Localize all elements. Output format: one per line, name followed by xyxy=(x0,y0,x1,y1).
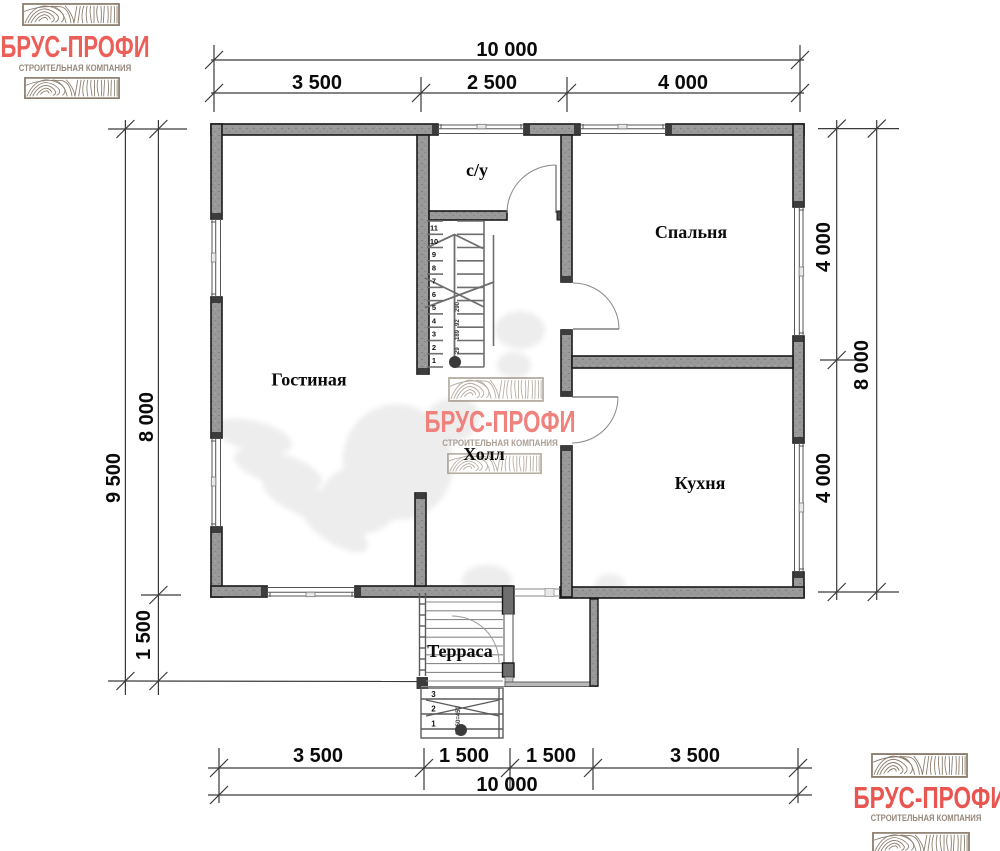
svg-text:9: 9 xyxy=(432,250,436,259)
svg-text:189: 189 xyxy=(455,329,461,340)
svg-text:1: 1 xyxy=(432,356,436,365)
svg-text:СТРОИТЕЛЬНАЯ КОМПАНИЯ: СТРОИТЕЛЬНАЯ КОМПАНИЯ xyxy=(19,62,132,73)
svg-text:БРУС-ПРОФИ: БРУС-ПРОФИ xyxy=(0,29,149,64)
svg-text:3 500: 3 500 xyxy=(670,745,720,767)
svg-text:Терраса: Терраса xyxy=(427,641,493,661)
svg-text:11: 11 xyxy=(430,224,438,233)
svg-text:92: 92 xyxy=(455,319,461,326)
svg-text:3: 3 xyxy=(432,330,436,339)
svg-text:Кухня: Кухня xyxy=(675,473,726,493)
svg-text:БРУС-ПРОФИ: БРУС-ПРОФИ xyxy=(424,404,575,438)
svg-text:3: 3 xyxy=(431,690,436,699)
svg-text:2: 2 xyxy=(431,705,436,714)
svg-text:4 000: 4 000 xyxy=(813,222,835,272)
svg-text:1 500: 1 500 xyxy=(133,610,155,660)
svg-text:2 500: 2 500 xyxy=(467,72,517,94)
svg-text:1: 1 xyxy=(431,720,436,729)
svg-text:7: 7 xyxy=(432,277,436,286)
svg-text:10 000: 10 000 xyxy=(476,774,537,796)
svg-text:8: 8 xyxy=(432,264,436,273)
svg-text:1 500: 1 500 xyxy=(526,745,576,767)
svg-text:1 500: 1 500 xyxy=(439,745,489,767)
svg-text:29: 29 xyxy=(455,347,461,354)
svg-text:3 500: 3 500 xyxy=(293,745,343,767)
svg-text:Спальня: Спальня xyxy=(655,222,728,242)
svg-text:10 000: 10 000 xyxy=(476,39,537,61)
svg-text:4 000: 4 000 xyxy=(658,72,708,94)
svg-text:БРУС-ПРОФИ: БРУС-ПРОФИ xyxy=(853,779,1000,814)
svg-text:6: 6 xyxy=(432,290,436,299)
svg-text:9 500: 9 500 xyxy=(103,453,125,503)
svg-text:Холл: Холл xyxy=(463,444,504,464)
svg-text:2: 2 xyxy=(432,343,436,352)
svg-text:СТРОИТЕЛЬНАЯ КОМПАНИЯ: СТРОИТЕЛЬНАЯ КОМПАНИЯ xyxy=(871,812,982,823)
svg-text:10: 10 xyxy=(430,237,438,246)
svg-text:3 500: 3 500 xyxy=(292,72,342,94)
svg-text:8 000: 8 000 xyxy=(136,392,158,442)
svg-text:Гостиная: Гостиная xyxy=(271,370,346,390)
svg-text:8 000: 8 000 xyxy=(851,340,873,390)
svg-text:4 000: 4 000 xyxy=(813,453,835,503)
svg-text:5: 5 xyxy=(432,303,436,312)
svg-text:с/у: с/у xyxy=(466,160,488,180)
svg-text:290: 290 xyxy=(455,301,461,312)
